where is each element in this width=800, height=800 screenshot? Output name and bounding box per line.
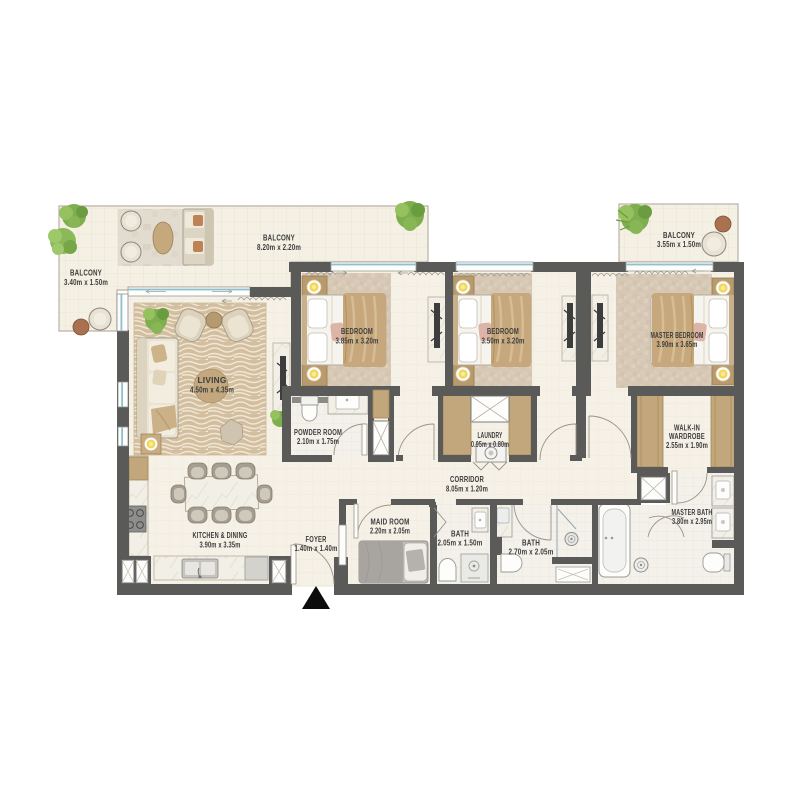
svg-text:WARDROBE: WARDROBE	[669, 432, 705, 441]
svg-text:KITCHEN & DINING: KITCHEN & DINING	[193, 531, 248, 540]
svg-text:3.55m x 1.50m: 3.55m x 1.50m	[657, 240, 701, 249]
svg-text:LAUNDRY: LAUNDRY	[478, 431, 503, 440]
svg-text:MASTER BEDROOM: MASTER BEDROOM	[651, 331, 704, 340]
svg-text:MAID ROOM: MAID ROOM	[371, 518, 410, 527]
svg-text:3.90m x 3.35m: 3.90m x 3.35m	[200, 540, 241, 549]
svg-text:8.20m x 2.20m: 8.20m x 2.20m	[257, 243, 301, 252]
svg-text:2.55m x 1.90m: 2.55m x 1.90m	[666, 441, 708, 450]
svg-text:BEDROOM: BEDROOM	[487, 327, 519, 336]
svg-text:LIVING: LIVING	[198, 376, 227, 385]
svg-text:MASTER BATH: MASTER BATH	[672, 508, 713, 517]
svg-text:1.40m x 1.40m: 1.40m x 1.40m	[295, 544, 338, 553]
svg-text:3.90m x 3.65m: 3.90m x 3.65m	[657, 340, 698, 349]
svg-text:2.70m x 2.05m: 2.70m x 2.05m	[509, 547, 554, 556]
svg-text:3.40m x 1.50m: 3.40m x 1.50m	[64, 278, 108, 287]
svg-text:POWDER ROOM: POWDER ROOM	[294, 428, 342, 437]
svg-text:0.95m x 0.80m: 0.95m x 0.80m	[471, 440, 509, 449]
svg-text:4.50m x 4.35m: 4.50m x 4.35m	[190, 385, 234, 394]
svg-text:8.05m x 1.20m: 8.05m x 1.20m	[446, 484, 488, 493]
svg-text:BALCONY: BALCONY	[70, 269, 102, 278]
svg-text:CORRIDOR: CORRIDOR	[450, 475, 484, 484]
svg-text:BALCONY: BALCONY	[663, 231, 695, 240]
svg-text:BATH: BATH	[451, 530, 469, 539]
svg-text:BEDROOM: BEDROOM	[341, 327, 373, 336]
svg-text:3.50m x 3.20m: 3.50m x 3.20m	[482, 336, 525, 345]
svg-text:2.05m x 1.50m: 2.05m x 1.50m	[438, 538, 483, 547]
svg-text:2.10m x 1.75m: 2.10m x 1.75m	[297, 437, 339, 446]
svg-text:3.80m x 2.95m: 3.80m x 2.95m	[672, 517, 712, 526]
svg-text:BALCONY: BALCONY	[263, 234, 295, 243]
svg-text:FOYER: FOYER	[306, 535, 327, 544]
svg-text:3.85m x 3.20m: 3.85m x 3.20m	[336, 336, 379, 345]
svg-text:BATH: BATH	[522, 539, 540, 548]
svg-text:2.20m x 2.05m: 2.20m x 2.05m	[370, 526, 410, 535]
